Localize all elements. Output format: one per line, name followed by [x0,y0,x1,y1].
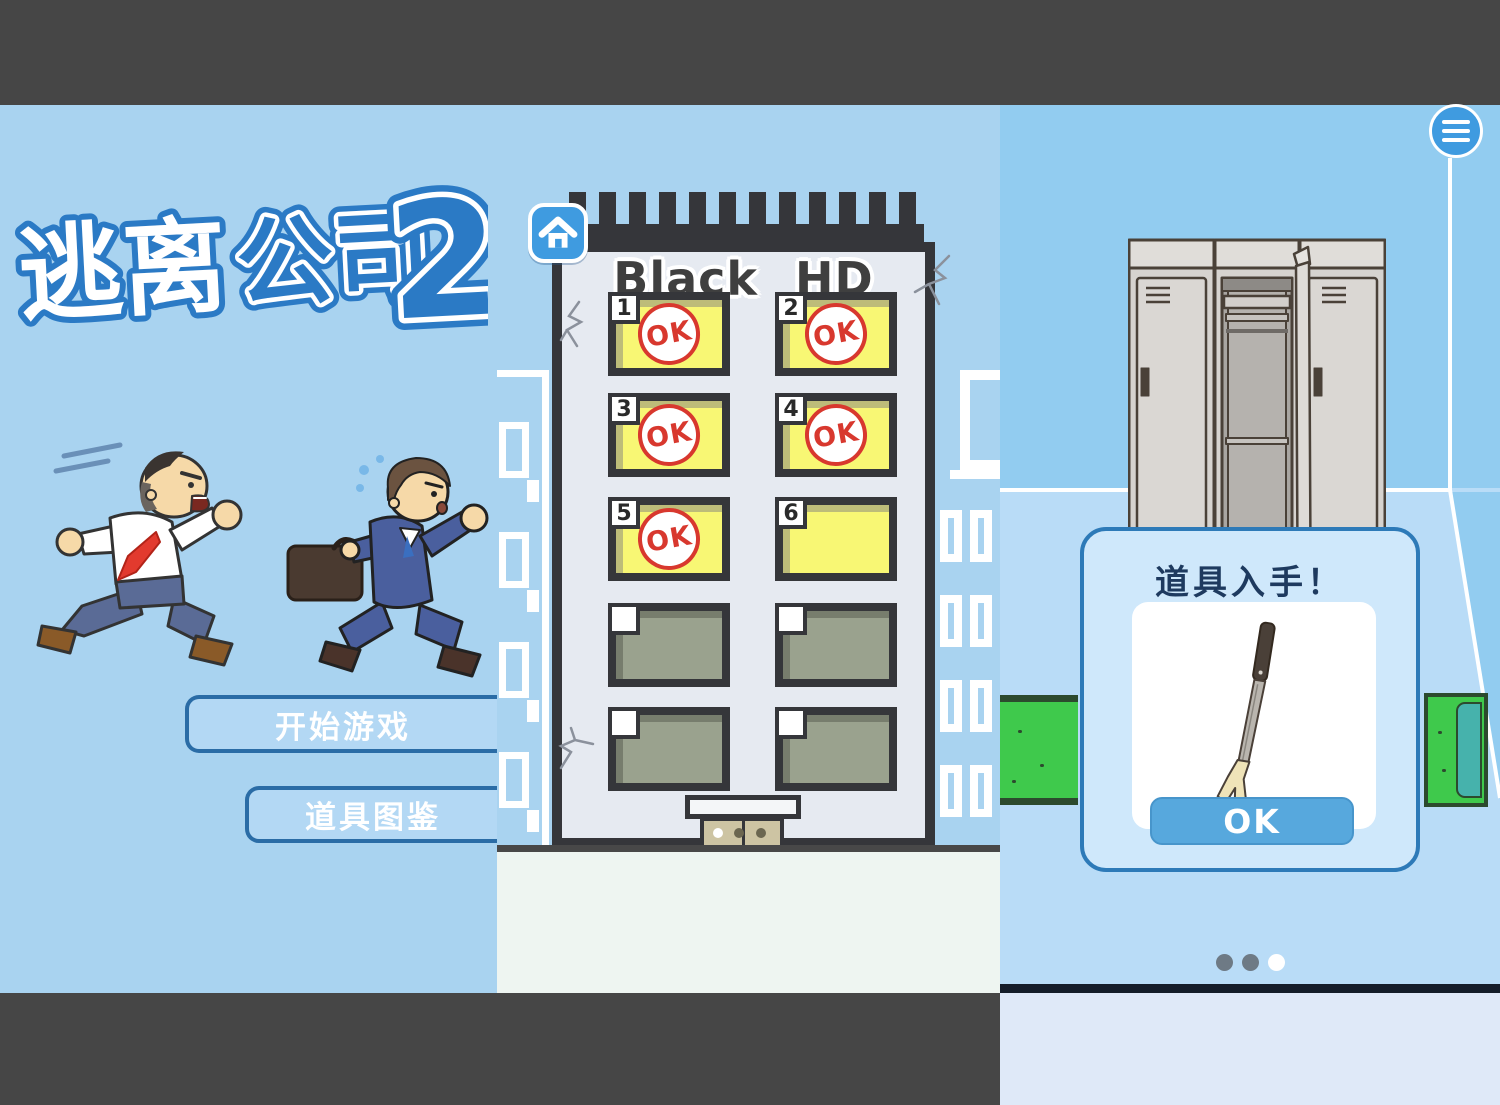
ok-stamp: OK [800,399,872,471]
ok-stamp: OK [633,503,705,575]
panel-level-select: Black HD 1 OK 2 OK 3 OK [497,0,1000,1105]
level-number [608,707,640,739]
floor-edge-line [1000,984,1500,993]
shoehorn-stick-icon [1174,614,1334,819]
home-icon [536,213,580,253]
item-obtained-dialog: 道具入手！ OK [1080,527,1420,872]
screenshot-montage: 逃离 公司 公司 2 2 [0,0,1500,1105]
level-number: 4 [775,393,807,425]
level-window-4[interactable]: 4 OK [775,393,897,477]
background-building-right [938,370,1000,848]
level-number [775,603,807,635]
bench-leg [1456,702,1482,798]
bottom-floor-strip [1000,993,1500,1105]
level-window-locked [608,603,730,687]
level-window-1[interactable]: 1 OK [608,292,730,376]
hamburger-menu-button[interactable] [1429,104,1483,158]
start-game-button[interactable]: 开始游戏 [185,695,497,753]
game-logo: 逃离 公司 公司 2 2 [10,148,488,363]
entrance-door [700,817,784,848]
pagination-dots [1000,954,1500,971]
logo-text-a: 逃离 [16,204,230,337]
page-dot-3-active [1268,954,1285,971]
level-number: 1 [608,292,640,324]
level-window-6[interactable]: 6 [775,497,897,581]
background-building-left [497,370,555,848]
ground [497,852,1000,993]
dialog-title: 道具入手！ [1084,555,1416,604]
home-button[interactable] [528,203,588,263]
building-roof-crenellation [569,192,918,226]
level-window-locked [608,707,730,791]
building-roof [563,224,924,244]
ok-stamp: OK [633,399,705,471]
panel-item-obtained: 道具入手！ OK [1000,0,1500,1105]
employee-character-illustration [270,450,492,698]
panel-title-screen: 逃离 公司 公司 2 2 [0,0,497,1105]
ok-stamp: OK [800,298,872,370]
ground-line [497,845,1000,852]
wall-crack [559,300,601,352]
level-number: 2 [775,292,807,324]
level-number [775,707,807,739]
level-window-2[interactable]: 2 OK [775,292,897,376]
wall-crack [555,726,597,770]
item-collection-button[interactable]: 道具图鉴 [245,786,497,843]
ok-button[interactable]: OK [1150,797,1354,845]
hamburger-menu-icon [1442,120,1470,124]
level-number: 5 [608,497,640,529]
level-number: 3 [608,393,640,425]
green-bench-right [1424,693,1488,807]
level-window-3[interactable]: 3 OK [608,393,730,477]
green-bench-left [1000,695,1078,805]
boss-character-illustration [24,438,252,676]
page-dot-2 [1242,954,1259,971]
entrance-awning [685,795,801,819]
level-window-5[interactable]: 5 OK [608,497,730,581]
level-window-locked [775,603,897,687]
level-number: 6 [775,497,807,529]
wall-crack [905,252,953,308]
item-image-box [1132,602,1376,829]
page-dot-1 [1216,954,1233,971]
ok-stamp: OK [633,298,705,370]
level-number [608,603,640,635]
logo-text-c: 2 [384,164,488,357]
level-window-locked [775,707,897,791]
